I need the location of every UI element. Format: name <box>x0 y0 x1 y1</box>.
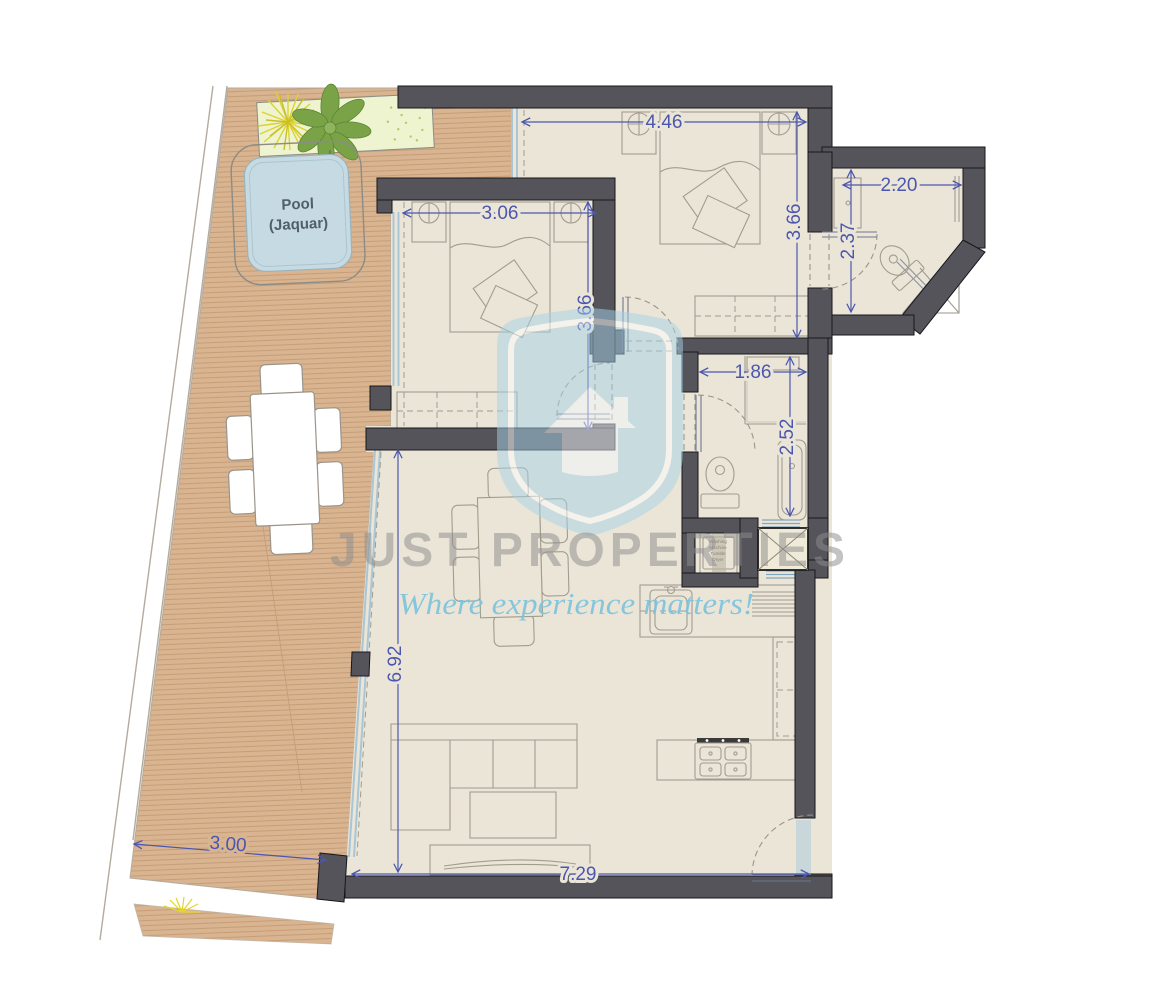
dim-label-master-width: 4.46 <box>646 112 683 133</box>
ceiling-light-symbol <box>768 113 790 135</box>
dim-label-terrace-width: 3.00 <box>209 833 248 857</box>
dim-label-master-depth: 3.66 <box>784 204 805 241</box>
dim-label-ensuite-depth: 2.37 <box>838 223 859 260</box>
outdoor-chair <box>314 408 342 453</box>
deck-strip-lower <box>134 904 334 944</box>
outdoor-chair <box>316 461 344 506</box>
floor-plan: Pool (Jaquar) <box>0 0 1162 983</box>
floor-plan-page: Pool (Jaquar) <box>0 0 1162 983</box>
entrance-glass <box>796 820 811 874</box>
brand-name: JUST PROPERTIES <box>330 524 850 577</box>
outdoor-chair <box>228 469 256 514</box>
dim-label-living-width: 7.29 <box>560 864 597 885</box>
dim-label-bedroom2-width: 3.06 <box>482 203 519 224</box>
outdoor-chair <box>226 415 254 460</box>
dim-label-ensuite-width: 2.20 <box>881 175 918 196</box>
pool: Pool (Jaquar) <box>230 140 366 286</box>
dim-label-living-depth: 6.92 <box>385 646 406 683</box>
pool-label-line2: (Jaquar) <box>269 215 329 235</box>
dim-label-bathroom-width: 1.86 <box>735 362 772 383</box>
pool-label-line1: Pool <box>281 195 314 213</box>
brand-tagline: Where experience matters! <box>398 586 754 621</box>
outdoor-dining-table <box>250 392 320 527</box>
brand-logo-shield <box>497 308 683 536</box>
dim-label-bathroom-depth: 2.52 <box>777 419 798 456</box>
